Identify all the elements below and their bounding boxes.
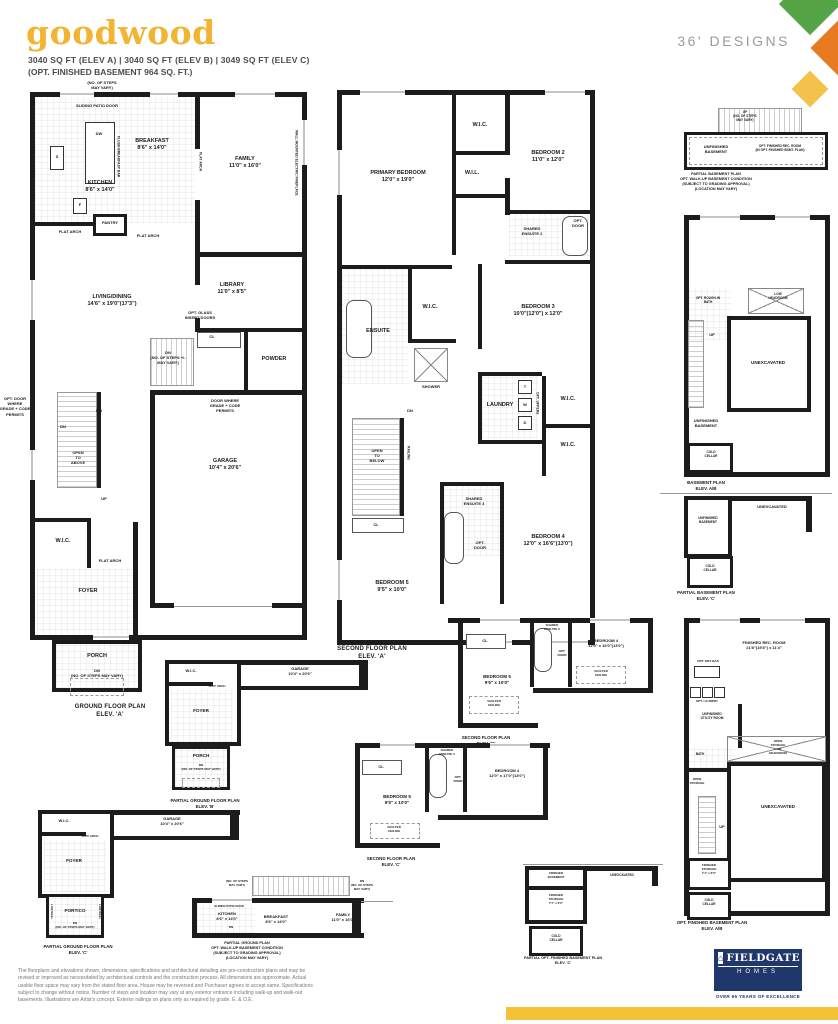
window-marker [590, 618, 630, 623]
room-label-unexcavated: UNEXCAVATED [751, 360, 785, 366]
note-dn-portico: DN (NO. OF STEPS MAY VARY) [55, 922, 94, 930]
wall [241, 686, 359, 690]
wet-bar [694, 666, 720, 678]
logo-name: FIELDGATE [726, 952, 800, 964]
room-label-foyer: FOYER [193, 708, 209, 714]
room-label-wil: W.I.L. [465, 170, 479, 177]
wall-line [361, 901, 393, 902]
room-label-wic: W.I.C. [59, 818, 70, 823]
note-low-wall: LOW WALL [50, 904, 53, 919]
note-opt-laundry: OPT. LAUNDRY [696, 700, 718, 704]
window-marker [302, 120, 307, 165]
label-washer: W [523, 402, 527, 407]
wall [35, 518, 91, 522]
window-marker [380, 743, 415, 748]
room-label-unexcavated: UNEXCAVATED [610, 873, 634, 877]
brand-diamond-yellow [792, 71, 829, 108]
room-label-cold-cellar: COLD CELLAR [550, 934, 563, 942]
note-sliding-patio-door: SLIDING PATIO DOOR [214, 905, 243, 909]
note-rough-in-bath: OPT. ROUGH-IN BATH [696, 296, 720, 304]
grade-line [660, 493, 832, 494]
wall [169, 682, 213, 686]
wall [359, 660, 368, 690]
label-sink: S [56, 154, 59, 159]
window-marker [760, 618, 805, 623]
note-open-to-above: OPEN TO ABOVE [71, 450, 85, 466]
wall [478, 264, 482, 349]
bathtub [444, 512, 464, 564]
note-steps: (NO. OF STEPS MAY VARY) [226, 880, 248, 888]
room-label-bedroom4: BEDROOM 4 12'0" x 16'6"(13'0") [523, 534, 572, 548]
label-closet: CL [482, 638, 487, 643]
wall [452, 95, 456, 255]
wall [241, 660, 367, 665]
tile-floor [37, 568, 133, 636]
wall [195, 252, 307, 257]
wall [458, 618, 463, 728]
room-label-finished-storage: FINISHED STORAGE 7'1" x 6'0" [702, 864, 717, 876]
wall [533, 688, 653, 693]
room-label-garage: GARAGE 10'4" x 20'6" [288, 666, 312, 676]
room-label-bedroom4: BEDROOM 4 12'0" x 17'0"(13'0") [489, 768, 525, 778]
plan-title-ground-walkup: PARTIAL GROUND PLAN OPT. WALK-UP BASEMEN… [211, 941, 283, 961]
wall [195, 200, 200, 255]
garage-door-line [174, 606, 272, 607]
wall [505, 260, 595, 264]
note-flat-arch: FLAT ARCH [137, 233, 159, 238]
window-marker [150, 92, 178, 97]
room-label-unfinished-basement: UNFINISHED BASEMENT [704, 144, 728, 154]
window-marker [60, 92, 94, 97]
wall [648, 618, 653, 693]
room-label-finished-storage: FINISHED STORAGE 7'1" x 6'0" [549, 894, 564, 906]
fieldgate-logo: ⌂ FIELDGATE HOMES [714, 949, 802, 991]
label-closet: CL [373, 522, 378, 527]
note-flat-arch: FLAT ARCH [59, 229, 81, 234]
house-icon: ⌂ [718, 952, 723, 964]
note-opt-door: OPT. DOOR [558, 650, 567, 658]
wall [42, 832, 86, 836]
designs-label: 36' DESIGNS [610, 33, 790, 49]
note-opt-door: OPT. DOOR [474, 540, 486, 550]
plan-title-second-c: SECOND FLOOR PLAN ELEV. 'C' [367, 856, 416, 867]
room-label-bath: BATH [696, 752, 705, 756]
room-label-foyer: FOYER [66, 858, 82, 864]
grade-line [523, 864, 663, 865]
room-label-pantry: PANTRY [102, 220, 118, 225]
window-marker [235, 92, 275, 97]
note-opt-door-grade: OPT. DOOR WHERE GRADE + CODE PERMITS [0, 396, 30, 417]
plan-title-basement-ab: BASEMENT PLAN ELEV. A/B [687, 480, 725, 491]
stairs [688, 320, 704, 408]
plan-title-basement-c: PARTIAL BASEMENT PLAN ELEV. 'C' [677, 590, 735, 601]
walkup-stairs [718, 108, 802, 134]
portico [46, 894, 104, 938]
note-opt-door: OPT. DOOR [572, 218, 584, 228]
closet [197, 332, 241, 348]
wall [438, 815, 548, 820]
wall [230, 810, 239, 840]
wall [408, 269, 412, 343]
note-flush-breakfast-bar: FLUSH BREAKFAST BAR [116, 136, 120, 177]
room-label-powder: POWDER [262, 356, 287, 363]
window-marker [360, 90, 405, 95]
room-label-kitchen: KITCHEN 8'6" x 14'0" [216, 911, 237, 921]
room-label-breakfast: BREAKFAST 8'6" x 14'0" [135, 138, 169, 152]
wall [587, 866, 657, 871]
sqft-line: 3040 SQ FT (ELEV A) | 3040 SQ FT (ELEV B… [28, 55, 310, 65]
window-marker [700, 618, 740, 623]
plan-title-ground-b: PARTIAL GROUND FLOOR PLAN ELEV. 'B' [170, 798, 239, 809]
wall [195, 97, 200, 149]
label-dishwasher: DW [96, 131, 103, 136]
room-label-wic: W.I.C. [423, 304, 438, 311]
window-marker [545, 90, 585, 95]
window-marker [30, 280, 35, 320]
label-closet: CL [209, 334, 214, 339]
note-opt-wet-bar: OPT. WET BAR [697, 660, 719, 664]
note-fireplace: WALL MOUNTED ELECTRIC FIREPLACE [294, 130, 298, 196]
note-opt-uppers: OPT. UPPERS [535, 392, 539, 414]
note-opt-glass-doors: OPT. GLASS INSERT DOORS [185, 310, 215, 320]
room-label-bedroom3: BEDROOM 3 10'0"(12'0") x 12'0" [513, 304, 562, 318]
room-label-foyer: FOYER [79, 588, 98, 595]
label-up: UP [709, 332, 715, 337]
wall [192, 933, 364, 938]
room-label-shared-ensuite2: SHARED ENSUITE 2 [522, 226, 543, 236]
room-label-wic: W.I.C. [561, 396, 576, 403]
tile-floor [44, 840, 106, 892]
room-label-unexcavated: UNEXCAVATED [757, 504, 787, 509]
wall [452, 194, 510, 198]
note-flat-arch: FLAT ARCH [99, 558, 121, 563]
stairs-up [698, 796, 716, 854]
room-label-primary-bedroom: PRIMARY BEDROOM 12'0" x 19'0" [370, 170, 425, 184]
wall [355, 743, 360, 848]
room-label-wic: W.I.C. [56, 538, 71, 545]
note-dn-porch: DN (NO. OF STEPS MAY VARY) [71, 668, 123, 678]
note-opt-door: OPT. DOOR [454, 776, 463, 784]
note-railing: RAILING [406, 446, 410, 460]
bathtub [429, 754, 447, 798]
wall [400, 418, 404, 516]
wall [97, 392, 101, 488]
wall [195, 257, 200, 285]
room-label-breakfast: BREAKFAST 8'6" x 14'0" [264, 914, 288, 924]
plan-title-finished-basement-c: PARTIAL OPT. FINISHED BASEMENT PLAN ELEV… [524, 956, 602, 966]
dashed-steps [70, 678, 124, 696]
note-vaulted-ceiling: VAULTED CEILING [387, 826, 401, 834]
walkup-stairs [252, 876, 350, 896]
note-vaulted-ceiling: VAULTED CEILING [594, 670, 608, 678]
laundry-fixture [690, 687, 701, 698]
wall [542, 424, 592, 428]
room-label-family: FAMILY 11'0" x 16'0" [331, 912, 354, 922]
room-label-bedroom2: BEDROOM 2 11'0" x 12'0" [531, 150, 564, 164]
room-label-bedroom5: BEDROOM 5 9'5" x 10'0" [375, 580, 408, 594]
room-label-garage: GARAGE 10'4" x 20'6" [209, 458, 241, 472]
room-label-shared-ensuite3: SHARED ENSUITE 3 [544, 624, 560, 632]
wall [505, 95, 510, 153]
label-tub: T [524, 384, 526, 389]
room-label-wic: W.I.C. [561, 442, 576, 449]
wall [463, 748, 467, 812]
window-marker [490, 743, 530, 748]
plan-title-basement-walkup: PARTIAL BASEMENT PLAN OPT. WALK-UP BASEM… [680, 172, 752, 192]
room-label-cold-cellar: COLD CELLAR [705, 450, 718, 458]
room-label-garage: GARAGE 10'4" x 20'6" [160, 816, 184, 826]
wall [150, 603, 174, 608]
room-label-laundry: LAUNDRY [487, 402, 514, 409]
note-vaulted-ceiling: VAULTED CEILING [487, 700, 501, 708]
label-up: UP [101, 496, 107, 501]
wall [114, 836, 232, 840]
wall [458, 723, 538, 728]
disclaimer-text: The floorplans and elevations shown, dim… [18, 968, 320, 1004]
label-dn: DN [229, 926, 233, 930]
note-dn-stairs: DN (NO. OF STEPS +/- MAY VARY) [150, 350, 185, 366]
note-open-to-below: OPEN TO BELOW [370, 448, 385, 464]
note-sliding-patio-door: SLIDING PATIO DOOR [76, 103, 118, 108]
shower-stall [414, 348, 448, 382]
plan-title-ground-a: GROUND FLOOR PLAN ELEV. 'A' [75, 704, 146, 720]
plan-title-ground-c: PARTIAL GROUND FLOOR PLAN ELEV. 'C' [43, 944, 112, 955]
window-marker [700, 215, 740, 220]
room-label-wic: W.I.C. [473, 122, 488, 129]
wall [244, 332, 248, 390]
room-label-living-dining: LIVING/DINING 14'6" x 19'0"(17'3") [87, 294, 136, 308]
note-open-storage: OPEN STORAGE LOW HEADROOM [769, 740, 787, 756]
wall [150, 390, 302, 395]
room-label-portico: PORTICO [65, 908, 86, 914]
bathtub [534, 628, 552, 672]
window-marker [337, 150, 342, 195]
label-dn: DN [60, 424, 66, 429]
unexcavated-room [727, 762, 826, 882]
room-label-finished-basement: FINISHED BASEMENT [548, 872, 565, 880]
note-low-wall: LOW WALL [98, 904, 101, 919]
note-steps: (NO. OF STEPS MAY VARY) [87, 80, 116, 90]
wall [87, 518, 91, 568]
page-title: goodwood [26, 13, 216, 52]
room-label-unfinished-basement: UNFINISHED BASEMENT [694, 418, 718, 428]
label-dryer: D [524, 420, 527, 425]
note-flat-arch: FLAT ARCH [82, 835, 99, 839]
wall [408, 339, 456, 343]
room-label-utility: UNFINISHED UTILITY ROOM [701, 712, 724, 720]
room-label-porch: PORCH [193, 753, 210, 759]
room-label-shared-ensuite3: SHARED ENSUITE 3 [464, 496, 485, 506]
tile-floor [171, 690, 233, 742]
stairs-open-below [352, 418, 400, 516]
label-shower: SHOWER [422, 384, 440, 389]
plan-basement-c [684, 496, 732, 558]
wall [529, 886, 583, 890]
wall [114, 810, 240, 815]
note-low-headroom: LOW HEADROOM [769, 292, 788, 300]
note-dn-porch: DN (NO. OF STEPS MAY VARY) [181, 764, 220, 772]
room-label-cold-cellar: COLD CELLAR [704, 564, 717, 572]
wall [500, 482, 504, 604]
plan-title-finished-basement-ab: OPT. FINISHED BASEMENT PLAN ELEV. A/B [677, 920, 748, 931]
logo-sub: HOMES [718, 966, 798, 975]
wall [568, 623, 572, 687]
note-open-storage: OPEN STORAGE [690, 778, 705, 786]
label-closet: CL [378, 764, 383, 769]
note-door-grade: DOOR WHERE GRADE + CODE PERMITS [210, 398, 241, 414]
room-label-unfinished-basement: UNFINISHED BASEMENT [698, 516, 717, 524]
laundry-fixture [702, 687, 713, 698]
wall [452, 151, 510, 155]
wall [355, 843, 440, 848]
room-label-ensuite: ENSUITE [366, 328, 390, 335]
wall [652, 866, 658, 886]
room-label-cold-cellar: COLD CELLAR [703, 898, 716, 906]
wall [478, 440, 542, 444]
note-flat-arch: FLAT ARCH [209, 685, 226, 689]
note-dn-steps: DN (NO. OF STEPS MAY VARY) [351, 880, 373, 892]
wall [150, 390, 155, 608]
dashed-steps [182, 778, 220, 788]
window-marker [775, 215, 810, 220]
opt-basement-line: (OPT. FINISHED BASEMENT 964 SQ. FT.) [28, 67, 192, 77]
room-label-family: FAMILY 11'0" x 16'0" [229, 156, 261, 170]
laundry-fixture [714, 687, 725, 698]
wall [272, 603, 307, 608]
footer-yellow-bar [506, 1007, 838, 1020]
room-label-porch: PORCH [87, 653, 107, 660]
wall [133, 522, 138, 636]
room-label-bedroom4: BEDROOM 4 12'0" x 16'0"(13'0") [588, 638, 624, 648]
label-fridge: F [79, 202, 81, 207]
window-marker [480, 618, 520, 623]
room-label-rec-room: FINISHED REC. ROOM 21'8"(19'8") x 11'4" [743, 640, 786, 650]
wall [806, 496, 812, 532]
room-label-bedroom5: BEDROOM 5 9'5" x 10'0" [483, 674, 511, 686]
room-label-unexcavated: UNEXCAVATED [761, 804, 795, 810]
note-up-steps: UP (NO. OF STEPS MAY VARY) [733, 110, 756, 122]
room-label-kitchen: KITCHEN 8'6" x 14'0" [85, 180, 114, 194]
room-label-shared-ensuite3: SHARED ENSUITE 3 [439, 749, 455, 757]
room-label-opt-rec-room: OPT. FINISHED REC. ROOM (IN OPT. FINISHE… [755, 144, 804, 152]
room-label-library: LIBRARY 11'0" x 8'5" [218, 282, 247, 296]
note-flat-arch: FLAT ARCH [198, 152, 202, 171]
room-label-bedroom5: BEDROOM 5 9'5" x 10'0" [383, 794, 411, 806]
label-dn: DN [96, 408, 102, 413]
logo-tagline: OVER 65 YEARS OF EXCELLENCE [700, 994, 816, 999]
window-marker [30, 450, 35, 480]
label-up: UP [719, 824, 725, 829]
window-marker [337, 560, 342, 600]
label-dn: DN [407, 408, 413, 413]
floorplan-sheet: goodwood 3040 SQ FT (ELEV A) | 3040 SQ F… [0, 0, 838, 1024]
stairs-up [57, 392, 97, 488]
room-label-wic: W.I.C. [186, 668, 197, 673]
wall [732, 496, 812, 501]
wall [543, 743, 548, 819]
